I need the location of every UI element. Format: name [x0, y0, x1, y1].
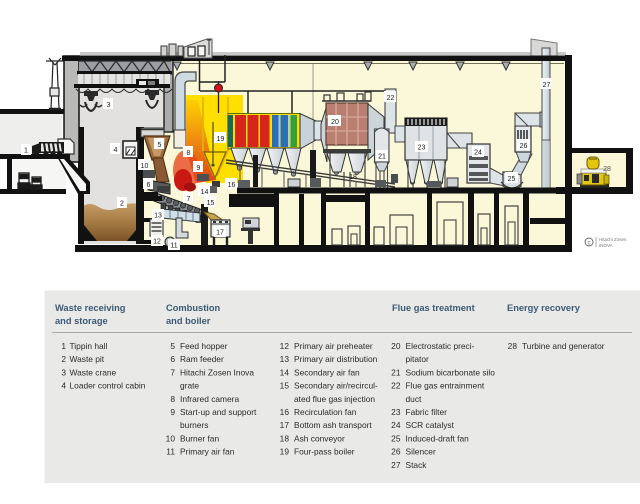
svg-text:10: 10	[166, 433, 176, 443]
svg-text:11: 11	[170, 243, 177, 250]
svg-text:24: 24	[474, 150, 482, 157]
svg-text:1: 1	[61, 341, 66, 351]
svg-text:Hitachi Zosen Inova: Hitachi Zosen Inova	[180, 367, 254, 377]
svg-text:27: 27	[391, 460, 401, 470]
svg-text:12: 12	[153, 239, 161, 246]
svg-text:Waste receiving: Waste receiving	[55, 303, 126, 313]
svg-text:4: 4	[114, 147, 118, 154]
svg-text:13: 13	[154, 213, 162, 220]
svg-text:Fabric filter: Fabric filter	[406, 407, 448, 417]
svg-text:9: 9	[197, 165, 201, 172]
svg-text:9: 9	[170, 407, 175, 417]
svg-text:Secondary air fan: Secondary air fan	[294, 367, 360, 377]
svg-text:14: 14	[280, 367, 290, 377]
svg-text:6: 6	[147, 182, 151, 189]
svg-text:25: 25	[391, 433, 401, 443]
svg-text:23: 23	[418, 145, 426, 152]
svg-text:and storage: and storage	[55, 316, 108, 326]
svg-text:Combustion: Combustion	[166, 303, 221, 313]
svg-text:Recirculation fan: Recirculation fan	[294, 407, 357, 417]
svg-text:Infrared camera: Infrared camera	[180, 394, 239, 404]
svg-text:Flue gas entrainment: Flue gas entrainment	[406, 381, 485, 391]
svg-text:Primary air fan: Primary air fan	[180, 447, 235, 457]
svg-text:7: 7	[170, 367, 175, 377]
svg-text:Primary air preheater: Primary air preheater	[294, 341, 373, 351]
svg-text:20: 20	[331, 119, 339, 126]
svg-text:23: 23	[391, 407, 401, 417]
svg-text:INOVA: INOVA	[599, 243, 613, 248]
svg-text:22: 22	[391, 381, 401, 391]
svg-text:c: c	[588, 241, 591, 247]
svg-text:26: 26	[520, 143, 528, 150]
svg-text:7: 7	[187, 196, 191, 203]
svg-text:15: 15	[280, 381, 290, 391]
svg-text:grate: grate	[180, 381, 199, 391]
svg-text:5: 5	[170, 341, 175, 351]
svg-text:8: 8	[187, 150, 191, 157]
svg-text:and boiler: and boiler	[166, 316, 211, 326]
svg-text:21: 21	[378, 154, 386, 161]
svg-text:16: 16	[228, 182, 236, 189]
svg-text:3: 3	[107, 102, 111, 109]
svg-text:burners: burners	[180, 420, 208, 430]
svg-text:26: 26	[391, 447, 401, 457]
svg-text:2: 2	[120, 201, 124, 208]
svg-text:27: 27	[543, 82, 551, 89]
svg-text:16: 16	[280, 407, 290, 417]
svg-text:Ash conveyor: Ash conveyor	[294, 433, 345, 443]
svg-text:13: 13	[280, 354, 290, 364]
svg-text:5: 5	[158, 142, 162, 149]
svg-text:14: 14	[201, 189, 209, 196]
svg-text:Turbine and generator: Turbine and generator	[522, 341, 605, 351]
svg-text:28: 28	[603, 166, 611, 173]
svg-text:25: 25	[508, 176, 516, 183]
svg-text:11: 11	[166, 447, 175, 457]
svg-text:10: 10	[141, 163, 149, 170]
svg-text:Electrostatic preci-: Electrostatic preci-	[406, 341, 475, 351]
svg-text:24: 24	[391, 420, 401, 430]
svg-text:Ram feeder: Ram feeder	[180, 354, 224, 364]
svg-text:3: 3	[61, 367, 66, 377]
svg-text:1: 1	[24, 148, 28, 155]
svg-text:Four-pass boiler: Four-pass boiler	[294, 447, 355, 457]
svg-text:pitator: pitator	[406, 354, 429, 364]
svg-text:19: 19	[217, 136, 225, 143]
svg-text:21: 21	[391, 367, 401, 377]
svg-text:Feed hopper: Feed hopper	[180, 341, 228, 351]
svg-text:17: 17	[280, 420, 290, 430]
svg-text:18: 18	[349, 174, 357, 181]
svg-text:duct: duct	[406, 394, 423, 404]
svg-text:Loader control cabin: Loader control cabin	[70, 381, 146, 391]
svg-text:Waste crane: Waste crane	[70, 367, 117, 377]
svg-text:28: 28	[508, 341, 518, 351]
svg-text:12: 12	[280, 341, 290, 351]
svg-text:ated flue gas injection: ated flue gas injection	[294, 394, 375, 404]
svg-text:17: 17	[216, 230, 224, 237]
svg-text:Induced-draft fan: Induced-draft fan	[406, 433, 470, 443]
svg-text:Primary air distribution: Primary air distribution	[294, 354, 378, 364]
svg-text:Hitachi Zosen: Hitachi Zosen	[599, 237, 627, 242]
svg-text:19: 19	[280, 447, 290, 457]
svg-text:4: 4	[61, 381, 66, 391]
svg-text:Bottom ash transport: Bottom ash transport	[294, 420, 372, 430]
svg-text:Waste pit: Waste pit	[70, 354, 105, 364]
svg-text:2: 2	[61, 354, 66, 364]
svg-text:8: 8	[170, 394, 175, 404]
svg-text:20: 20	[391, 341, 401, 351]
svg-text:6: 6	[170, 354, 175, 364]
svg-text:Secondary air/recircul-: Secondary air/recircul-	[294, 381, 378, 391]
svg-text:SCR catalyst: SCR catalyst	[406, 420, 455, 430]
svg-text:22: 22	[387, 95, 395, 102]
svg-text:Burner fan: Burner fan	[180, 433, 219, 443]
svg-text:Energy recovery: Energy recovery	[507, 303, 581, 313]
svg-text:Tippin hall: Tippin hall	[70, 341, 108, 351]
svg-text:Flue gas treatment: Flue gas treatment	[392, 303, 475, 313]
svg-text:15: 15	[207, 200, 215, 207]
svg-text:Sodium bicarbonate silo: Sodium bicarbonate silo	[406, 367, 496, 377]
svg-text:Silencer: Silencer	[406, 447, 436, 457]
svg-text:18: 18	[280, 433, 290, 443]
svg-text:Start-up and support: Start-up and support	[180, 407, 257, 417]
svg-text:Stack: Stack	[406, 460, 428, 470]
